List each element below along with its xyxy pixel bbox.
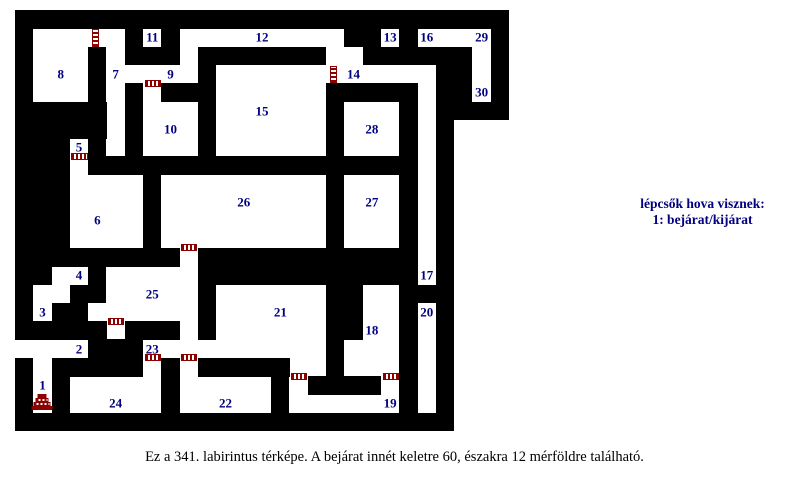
maze-wall: [326, 303, 363, 322]
stairs-ladder-icon: [181, 244, 197, 251]
maze-wall: [15, 248, 180, 267]
room-number-label-10: 10: [164, 122, 177, 135]
room-number-label-21: 21: [274, 305, 287, 318]
room-number-label-14: 14: [347, 68, 360, 81]
maze-wall: [15, 413, 454, 432]
maze-wall: [363, 47, 473, 66]
maze-wall: [399, 394, 417, 413]
maze-wall: [326, 193, 344, 212]
maze-wall: [15, 266, 52, 285]
maze-wall: [143, 211, 161, 230]
maze-wall: [436, 376, 454, 395]
room-number-label-8: 8: [58, 68, 65, 81]
maze-wall: [125, 47, 180, 66]
maze-wall: [15, 156, 70, 175]
maze-wall: [88, 138, 106, 157]
maze-wall: [52, 358, 144, 377]
stairs-legend: lépcsők hova visznek: 1: bejárat/kijárat: [585, 196, 789, 228]
room-number-label-7: 7: [112, 68, 119, 81]
maze-wall: [161, 358, 179, 377]
maze-wall: [399, 376, 417, 395]
stairs-ladder-icon: [92, 29, 99, 46]
maze-wall: [198, 285, 216, 304]
maze-wall: [399, 321, 417, 340]
maze-wall: [88, 339, 143, 358]
room-number-label-9: 9: [167, 68, 174, 81]
maze-wall: [125, 321, 180, 340]
room-number-label-18: 18: [365, 324, 378, 337]
maze-wall: [271, 394, 289, 413]
maze-wall: [399, 102, 417, 121]
stairs-ladder-icon: [71, 153, 87, 160]
maze-wall: [326, 321, 363, 340]
maze-wall: [436, 211, 454, 230]
stairs-legend-title: lépcsők hova visznek:: [585, 196, 789, 212]
maze-wall: [15, 120, 107, 139]
maze-wall: [15, 358, 33, 377]
maze-wall: [15, 65, 33, 84]
maze-wall: [436, 339, 454, 358]
maze-wall: [198, 120, 216, 139]
maze-wall: [399, 211, 417, 230]
maze-wall: [161, 376, 179, 395]
maze-wall: [15, 211, 70, 230]
maze-wall: [436, 83, 473, 102]
room-number-label-23: 23: [146, 342, 159, 355]
maze-wall: [125, 83, 143, 102]
maze-wall: [88, 83, 106, 102]
entrance-stairs-icon: [31, 394, 53, 411]
maze-wall: [326, 230, 344, 249]
room-number-label-19: 19: [384, 397, 397, 410]
maze-wall: [491, 83, 509, 102]
maze-wall: [326, 120, 344, 139]
maze-wall: [326, 102, 344, 121]
maze-wall: [15, 10, 509, 29]
maze-wall: [436, 102, 509, 121]
maze-wall: [326, 211, 344, 230]
maze-wall: [399, 193, 417, 212]
maze-wall: [88, 156, 417, 175]
room-number-label-27: 27: [365, 196, 378, 209]
maze-wall: [326, 285, 363, 304]
maze-wall: [70, 285, 107, 304]
room-number-label-25: 25: [146, 287, 159, 300]
maze-wall: [399, 120, 417, 139]
maze-wall: [143, 175, 161, 194]
maze-wall: [15, 230, 70, 249]
maze-wall: [491, 28, 509, 47]
map-caption: Ez a 341. labirintus térképe. A bejárat …: [0, 449, 789, 466]
room-number-label-11: 11: [146, 31, 158, 44]
entrance-stairs-step: [32, 406, 53, 410]
stairs-ladder-icon: [145, 354, 161, 361]
maze-wall: [15, 175, 70, 194]
maze-wall: [143, 193, 161, 212]
room-number-label-13: 13: [384, 31, 397, 44]
maze-wall: [436, 120, 454, 139]
maze-wall: [326, 83, 418, 102]
maze-wall: [436, 394, 454, 413]
maze-wall: [161, 83, 216, 102]
room-number-label-6: 6: [94, 214, 101, 227]
stairs-ladder-icon: [181, 354, 197, 361]
maze-wall: [491, 47, 509, 66]
maze-wall: [436, 230, 454, 249]
maze-wall: [436, 65, 473, 84]
maze-wall: [271, 376, 289, 395]
room-number-label-5: 5: [76, 141, 83, 154]
room-number-label-24: 24: [109, 397, 122, 410]
maze-wall: [88, 47, 106, 66]
maze-wall: [15, 193, 70, 212]
maze-wall: [399, 285, 454, 304]
maze-wall: [308, 376, 381, 395]
room-number-label-4: 4: [76, 269, 83, 282]
maze-wall: [198, 138, 216, 157]
maze-wall: [326, 138, 344, 157]
maze-wall: [143, 230, 161, 249]
room-number-label-26: 26: [237, 196, 250, 209]
maze-wall: [399, 138, 417, 157]
maze-wall: [436, 156, 454, 175]
maze-wall: [436, 193, 454, 212]
maze-wall: [15, 285, 33, 304]
room-number-label-28: 28: [365, 122, 378, 135]
stairs-ladder-icon: [383, 373, 399, 380]
maze-wall: [198, 65, 216, 84]
maze-wall: [198, 266, 418, 285]
room-number-label-2: 2: [76, 342, 83, 355]
maze-wall: [125, 138, 143, 157]
maze-wall: [399, 28, 417, 47]
maze-wall: [399, 339, 417, 358]
maze-wall: [161, 28, 179, 47]
maze-wall: [198, 321, 216, 340]
maze-wall: [125, 28, 143, 47]
maze-wall: [326, 175, 344, 194]
maze-wall: [436, 248, 454, 267]
maze-wall: [491, 65, 509, 84]
maze-wall: [198, 102, 216, 121]
maze-wall: [52, 303, 89, 322]
maze-wall: [344, 28, 381, 47]
maze-wall: [436, 358, 454, 377]
maze-wall: [15, 303, 33, 322]
maze-wall: [88, 65, 106, 84]
room-number-label-15: 15: [256, 104, 269, 117]
maze-wall: [436, 138, 454, 157]
maze-wall: [161, 394, 179, 413]
maze-wall: [399, 303, 417, 322]
stairs-ladder-icon: [108, 318, 124, 325]
maze-wall: [399, 230, 417, 249]
room-number-label-17: 17: [420, 269, 433, 282]
maze-wall: [198, 303, 216, 322]
maze-wall: [52, 394, 70, 413]
maze-wall: [198, 248, 418, 267]
maze-wall: [326, 339, 344, 358]
room-number-label-3: 3: [39, 305, 46, 318]
stairs-ladder-icon: [291, 373, 307, 380]
maze-wall: [198, 47, 326, 66]
maze-wall: [15, 138, 70, 157]
room-number-label-22: 22: [219, 397, 232, 410]
stairs-ladder-icon: [330, 66, 337, 83]
maze-wall: [326, 358, 344, 377]
maze-wall: [15, 321, 107, 340]
maze-wall: [15, 376, 33, 395]
room-number-label-30: 30: [475, 86, 488, 99]
maze-wall: [125, 102, 143, 121]
room-number-label-16: 16: [420, 31, 433, 44]
room-number-label-12: 12: [256, 31, 269, 44]
maze-wall: [198, 358, 290, 377]
maze-wall: [15, 47, 33, 66]
maze-wall: [399, 175, 417, 194]
maze-wall: [399, 358, 417, 377]
maze-wall: [436, 321, 454, 340]
maze-wall: [436, 303, 454, 322]
stairs-legend-entry: 1: bejárat/kijárat: [585, 212, 789, 228]
maze-wall: [436, 175, 454, 194]
room-number-label-29: 29: [475, 31, 488, 44]
labyrinth-map-page: 1234567891011121314151617181920212223242…: [0, 0, 789, 493]
maze-wall: [125, 120, 143, 139]
stairs-ladder-icon: [145, 80, 161, 87]
maze-wall: [88, 266, 106, 285]
room-number-label-20: 20: [420, 305, 433, 318]
maze-wall: [52, 376, 70, 395]
maze-wall: [436, 266, 454, 285]
room-number-label-1: 1: [39, 379, 46, 392]
maze-wall: [15, 28, 33, 47]
maze-wall: [15, 83, 33, 102]
maze-wall: [15, 102, 107, 121]
